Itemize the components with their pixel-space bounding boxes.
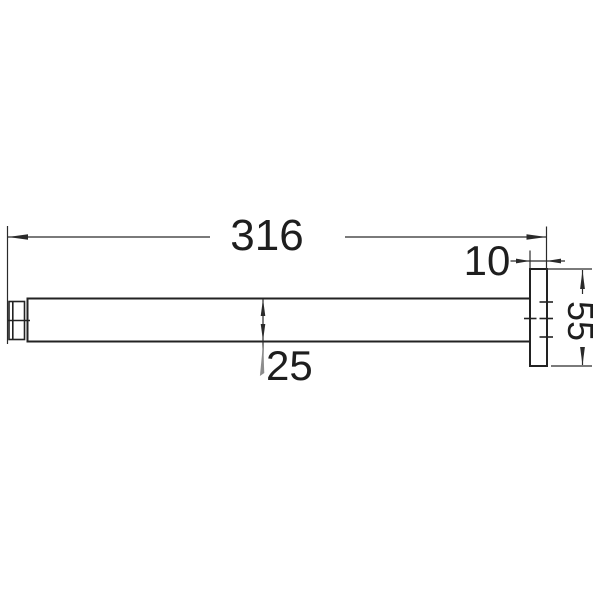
dim-flange-diameter-label: 55 <box>560 301 600 341</box>
dim-25-down-arrow-icon <box>261 324 266 341</box>
dim-overall-length-label: 316 <box>230 211 303 260</box>
wall-flange <box>530 269 547 366</box>
dim-10-left-arrow-icon <box>516 259 530 264</box>
drawing-canvas: 316 10 55 25 <box>0 0 600 600</box>
arm-tube <box>28 299 531 342</box>
dim-25-up-arrow-icon <box>261 299 266 316</box>
dim-flange-depth-label: 10 <box>464 237 511 284</box>
dim-10-right-arrow-icon <box>547 259 562 264</box>
dim-arm-diameter-label: 25 <box>266 342 313 389</box>
dim-316-right-arrow-icon <box>527 234 547 239</box>
shower-arm-technical-drawing: 316 10 55 25 <box>0 0 600 600</box>
dim-25-leader-sliver <box>260 344 264 376</box>
dim-55-down-arrow-icon <box>580 347 585 366</box>
dim-55-up-arrow-icon <box>580 270 585 289</box>
dim-316-left-arrow-icon <box>8 234 28 239</box>
